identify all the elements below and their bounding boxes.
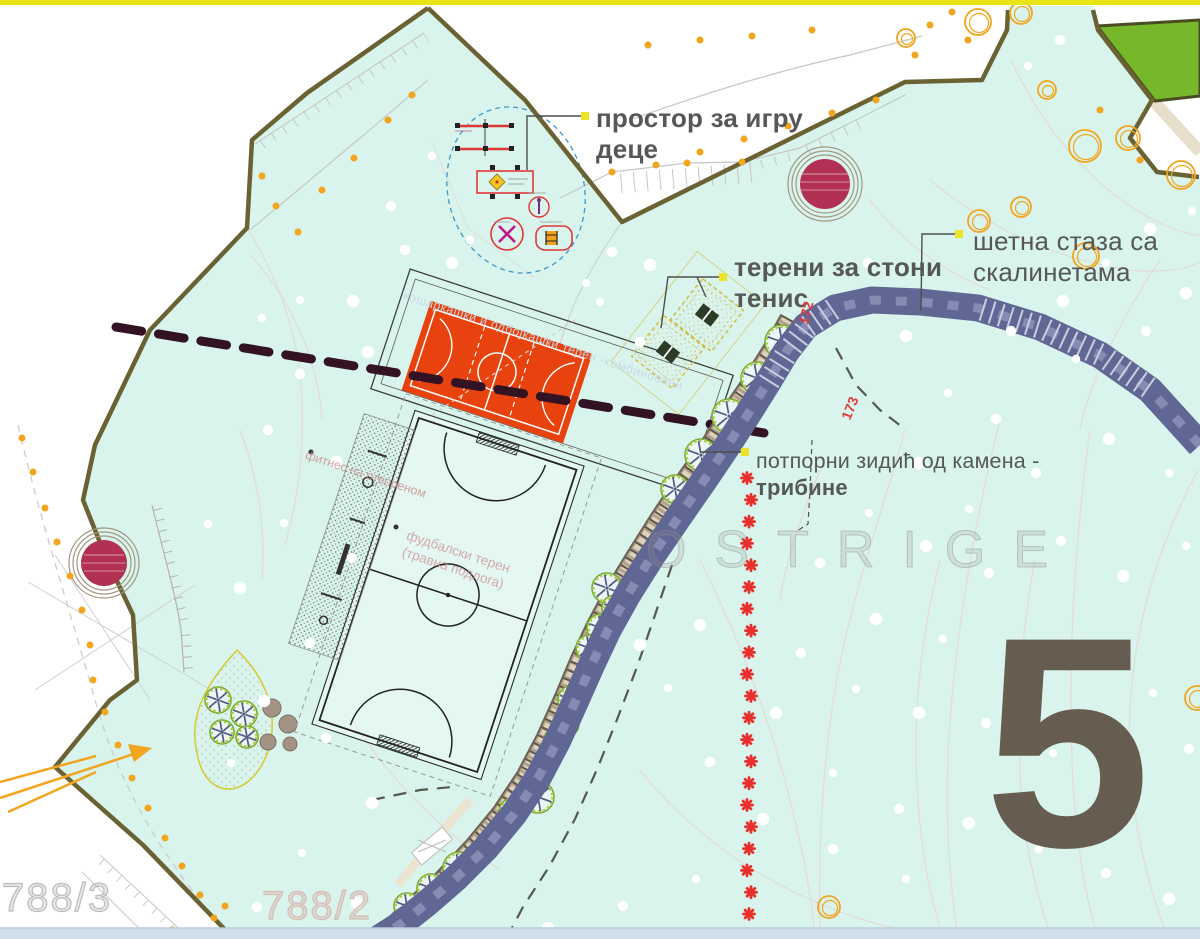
white-dot <box>618 901 628 911</box>
street-light-dot <box>927 22 934 29</box>
top-yellow-bar <box>0 0 1200 5</box>
red-marker-icon <box>746 887 757 898</box>
white-dot <box>466 236 474 244</box>
street-light-dot <box>145 805 152 812</box>
street-light-dot <box>1097 107 1104 114</box>
street-light-dot <box>409 92 416 99</box>
street-light-dot <box>67 573 74 580</box>
label-marker-square <box>955 230 963 238</box>
white-dot <box>870 613 882 625</box>
white-dot <box>1006 326 1016 336</box>
street-light-dot <box>645 42 652 49</box>
street-light-dot <box>829 110 836 117</box>
street-light-dot <box>42 505 49 512</box>
street-light-dot <box>319 187 326 194</box>
white-dot <box>347 295 359 307</box>
playground-label-line1: простор за игру <box>596 103 803 134</box>
white-dot <box>295 369 305 379</box>
white-dot <box>635 337 645 347</box>
white-dot <box>644 259 656 271</box>
retaining-wall-label-line2: трибине <box>756 475 1039 501</box>
white-dot <box>1188 207 1196 215</box>
white-dot <box>939 635 947 643</box>
label-marker-square <box>741 448 749 456</box>
parcel-number-788-3: 788/3 <box>2 876 112 921</box>
street-light-dot <box>609 169 616 176</box>
tree-icon <box>236 726 258 748</box>
label-marker-square <box>719 273 727 281</box>
street-light-dot <box>295 229 302 236</box>
street-light-dot <box>87 642 94 649</box>
white-dot <box>596 298 604 306</box>
bottom-strip <box>0 928 1200 939</box>
red-marker-icon <box>744 712 755 723</box>
sheet-number: 5 <box>984 592 1151 892</box>
red-marker-icon <box>744 647 755 658</box>
white-dot <box>913 707 925 719</box>
white-dot <box>894 804 904 814</box>
white-dot <box>296 296 304 304</box>
white-dot <box>991 414 1001 424</box>
watermark-text: OSTRIGE <box>646 520 1076 580</box>
street-light-dot <box>197 892 204 899</box>
white-dot <box>757 813 769 825</box>
street-light-dot <box>1137 157 1144 164</box>
street-light-dot <box>90 677 97 684</box>
white-dot <box>204 520 212 528</box>
street-light-dot <box>102 709 109 716</box>
white-dot <box>366 797 378 809</box>
red-marker-icon <box>746 494 757 505</box>
white-dot <box>694 619 706 631</box>
white-dot <box>400 245 410 255</box>
street-light-dot <box>115 742 122 749</box>
retaining-wall-label: потпорни зидић од камена - трибине <box>756 449 1039 501</box>
white-dot <box>347 553 357 563</box>
white-dot <box>1024 62 1032 70</box>
white-dot <box>607 247 617 257</box>
street-light-dot <box>179 863 186 870</box>
parcel-number-788-2: 788/2 <box>262 884 372 929</box>
street-light-dot <box>129 775 136 782</box>
white-dot <box>252 902 262 912</box>
white-dot <box>770 707 782 719</box>
white-dot <box>227 759 235 767</box>
street-light-dot <box>809 27 816 34</box>
table-tennis-label-line1: терени за стони <box>734 252 942 283</box>
street-light-dot <box>912 52 919 59</box>
street-light-dot <box>259 173 266 180</box>
white-dot <box>963 817 975 829</box>
tree-icon <box>231 701 257 727</box>
red-marker-icon <box>746 691 757 702</box>
white-dot <box>1180 287 1192 299</box>
white-dot <box>321 733 331 743</box>
street-light-dot <box>385 117 392 124</box>
white-dot <box>902 875 910 883</box>
white-dot <box>280 519 288 527</box>
white-dot <box>1103 433 1115 445</box>
red-marker-icon <box>742 473 753 484</box>
playground-label: простор за игру деце <box>596 103 803 165</box>
white-dot <box>1057 295 1069 307</box>
red-marker-icon <box>742 734 753 745</box>
street-light-dot <box>873 97 880 104</box>
street-light-dot <box>30 469 37 476</box>
white-dot <box>865 509 873 517</box>
red-marker-icon <box>742 800 753 811</box>
red-marker-icon <box>742 669 753 680</box>
white-dot <box>1165 469 1173 477</box>
street-light-dot <box>749 33 756 40</box>
site-plan: простор за игру деце терени за стони тен… <box>0 0 1200 939</box>
white-dot <box>705 757 715 767</box>
tree-icon <box>210 720 234 744</box>
red-marker-icon <box>744 778 755 789</box>
white-dot <box>664 684 672 692</box>
red-marker-icon <box>744 909 755 920</box>
table-tennis-label: терени за стони тенис <box>734 252 942 314</box>
white-dot <box>305 638 315 648</box>
red-marker-icon <box>742 603 753 614</box>
white-dot <box>634 639 646 651</box>
white-dot <box>258 314 266 322</box>
walkway-label: шетна стаза са скалинетама <box>973 226 1158 288</box>
white-dot <box>828 844 838 854</box>
street-light-dot <box>19 435 26 442</box>
walkway-label-line1: шетна стаза са <box>973 226 1158 257</box>
red-marker-icon <box>744 582 755 593</box>
white-dot <box>1055 35 1065 45</box>
white-dot <box>1163 893 1175 905</box>
white-dot <box>900 330 912 342</box>
tree-icon <box>205 687 231 713</box>
white-dot <box>965 505 973 513</box>
street-light-dot <box>54 539 61 546</box>
existing-tree-icon <box>965 9 991 35</box>
playground-label-line2: деце <box>596 134 803 165</box>
white-dot <box>944 389 952 397</box>
street-light-dot <box>222 903 229 910</box>
white-dot <box>1184 744 1194 754</box>
white-dot <box>258 695 270 707</box>
street-light-dot <box>79 607 86 614</box>
street-light-dot <box>965 37 972 44</box>
street-light-dot <box>697 37 704 44</box>
white-dot <box>1072 355 1080 363</box>
white-dot <box>796 648 806 658</box>
existing-tree-icon <box>897 29 915 47</box>
street-light-dot <box>351 155 358 162</box>
table-tennis-label-line2: тенис <box>734 283 942 314</box>
white-dot <box>852 685 860 693</box>
white-dot <box>446 257 458 269</box>
walkway-label-line2: скалинетама <box>973 257 1158 288</box>
white-dot <box>362 346 374 358</box>
street-light-dot <box>949 9 956 16</box>
label-marker-square <box>581 112 589 120</box>
red-marker-icon <box>746 821 757 832</box>
white-dot <box>298 849 306 857</box>
white-dot <box>263 425 273 435</box>
white-dot <box>386 201 396 211</box>
red-marker-icon <box>744 843 755 854</box>
street-light-dot <box>211 915 218 922</box>
white-dot <box>829 769 837 777</box>
retaining-wall-label-line1: потпорни зидић од камена - <box>756 449 1039 475</box>
street-light-dot <box>273 203 280 210</box>
street-light-dot <box>162 835 169 842</box>
white-dot <box>1182 542 1190 550</box>
white-dot <box>582 279 590 287</box>
white-dot <box>692 875 700 883</box>
red-marker-icon <box>746 756 757 767</box>
red-marker-icon <box>746 625 757 636</box>
white-dot <box>428 152 436 160</box>
white-dot <box>1141 326 1151 336</box>
red-marker-icon <box>742 865 753 876</box>
white-dot <box>234 582 246 594</box>
